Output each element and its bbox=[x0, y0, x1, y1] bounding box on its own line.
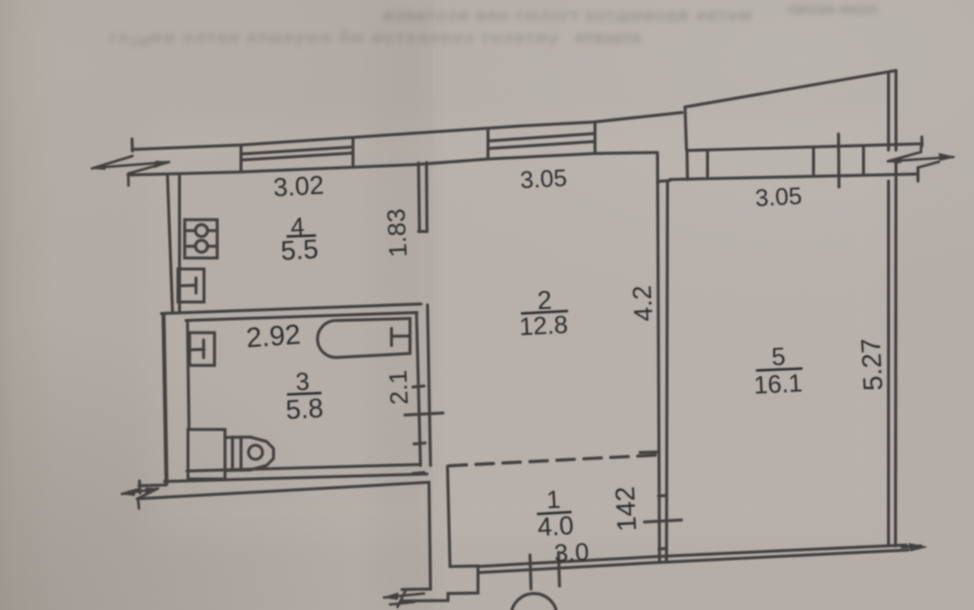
svg-text:12.8: 12.8 bbox=[519, 311, 569, 342]
svg-text:2.92: 2.92 bbox=[245, 319, 302, 354]
svg-text:5: 5 bbox=[771, 343, 786, 372]
svg-text:5.27: 5.27 bbox=[856, 337, 889, 391]
svg-text:5.5: 5.5 bbox=[280, 234, 319, 266]
svg-text:4.0: 4.0 bbox=[537, 510, 575, 542]
svg-text:3.05: 3.05 bbox=[755, 183, 803, 212]
svg-text:5.8: 5.8 bbox=[285, 393, 324, 425]
svg-text:1.83: 1.83 bbox=[382, 208, 413, 258]
svg-text:3: 3 bbox=[295, 368, 310, 397]
svg-text:3.05: 3.05 bbox=[520, 165, 568, 194]
svg-text:4.2: 4.2 bbox=[627, 285, 659, 323]
svg-text:3.0: 3.0 bbox=[553, 538, 589, 568]
svg-text:16.1: 16.1 bbox=[753, 369, 803, 400]
svg-text:2.1: 2.1 bbox=[384, 369, 414, 405]
svg-text:3.02: 3.02 bbox=[272, 170, 324, 203]
svg-text:142: 142 bbox=[610, 486, 642, 533]
